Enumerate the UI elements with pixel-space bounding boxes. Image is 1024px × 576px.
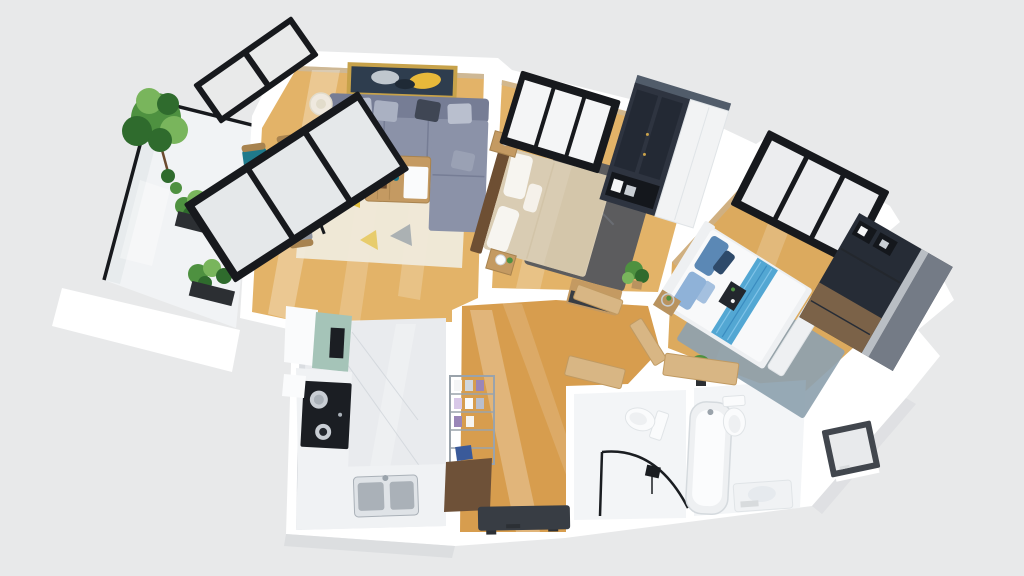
- tree-foliage: [122, 116, 152, 146]
- rack-bag: [455, 445, 473, 461]
- sink-basin: [390, 481, 415, 510]
- plant-foliage: [622, 272, 634, 284]
- plant-foliage: [635, 269, 649, 283]
- rack-item: [476, 398, 484, 409]
- rack-item: [465, 398, 473, 409]
- rack-item: [454, 380, 462, 391]
- wall-art: [346, 62, 457, 100]
- rack-item: [466, 416, 474, 427]
- mat-body: [478, 505, 570, 531]
- sofa-pillow: [373, 100, 399, 122]
- built-in-oven: [329, 328, 345, 359]
- plant-pot: [631, 280, 642, 290]
- vanity: [733, 480, 793, 512]
- vine-foliage: [161, 169, 175, 183]
- tray: [403, 166, 428, 199]
- tub-inner: [692, 409, 727, 506]
- rack-item: [454, 416, 462, 427]
- kitchen-sink: [353, 474, 418, 517]
- rack-item: [454, 398, 462, 409]
- rack-item: [465, 380, 473, 391]
- cooktop: [300, 381, 351, 449]
- floorplan-svg: 3D axonometric rendering of a two-bedroo…: [0, 0, 1024, 576]
- floorplan-render: 3D axonometric rendering of a two-bedroo…: [0, 0, 1024, 576]
- lamp-inner: [316, 99, 326, 109]
- rack-item: [476, 380, 484, 391]
- counter-block: [282, 374, 306, 398]
- sink-basin: [358, 482, 385, 511]
- towel: [740, 500, 758, 507]
- mat-detail: [506, 524, 520, 528]
- tree-foliage: [157, 93, 179, 115]
- sofa-pillow: [414, 99, 441, 123]
- hall-cabinet: [444, 458, 492, 512]
- vine-foliage: [170, 182, 182, 194]
- toilet-tank: [723, 395, 746, 407]
- toilet-2: [722, 395, 748, 437]
- sofa-pillow: [447, 103, 472, 124]
- tree-foliage: [148, 128, 172, 152]
